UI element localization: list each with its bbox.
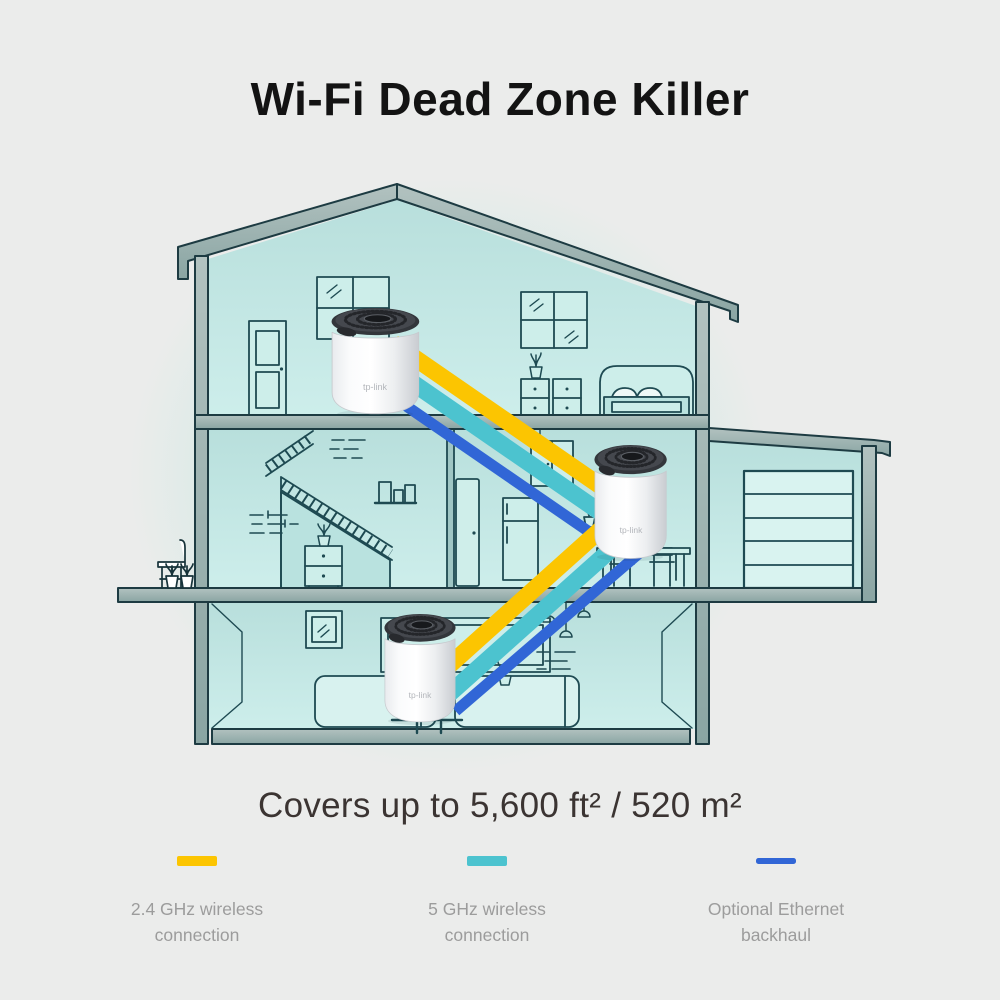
legend-item-24ghz: 2.4 GHz wireless connection: [87, 856, 307, 949]
ground-floor-slab: [212, 729, 690, 744]
tp-link-logo: tp-link: [620, 525, 643, 535]
bed: [600, 366, 693, 417]
nightstand: [305, 546, 342, 589]
infographic: Wi-Fi Dead Zone Killer: [0, 0, 1000, 1000]
porch: [158, 540, 193, 588]
house-illustration: tp-link tp-link tp-link: [0, 0, 1000, 1000]
legend-swatch-24ghz: [177, 856, 217, 866]
wall-right: [696, 302, 709, 744]
legend-item-5ghz: 5 GHz wireless connection: [377, 856, 597, 949]
deco-unit-middle: tp-link: [594, 445, 666, 558]
legend-label-ethernet: Optional Ethernet backhaul: [666, 896, 886, 949]
bedroom-window: [521, 292, 587, 348]
tp-link-logo: tp-link: [409, 690, 432, 700]
coverage-text: Covers up to 5,600 ft² / 520 m²: [0, 786, 1000, 826]
legend-item-ethernet: Optional Ethernet backhaul: [666, 856, 886, 949]
legend-swatch-ethernet: [756, 856, 796, 866]
garage-door: [744, 471, 853, 588]
deco-unit-attic: tp-link: [332, 308, 420, 414]
legend-label-5ghz: 5 GHz wireless connection: [377, 896, 597, 949]
partition-wall: [447, 429, 454, 588]
legend-label-24ghz: 2.4 GHz wireless connection: [87, 896, 307, 949]
garage-wall-right: [862, 446, 876, 602]
framed-picture: [306, 611, 342, 648]
attic-door: [249, 321, 286, 416]
wall-left: [195, 256, 208, 744]
deco-unit-ground: tp-link: [384, 614, 455, 722]
interior-door: [456, 479, 479, 586]
tp-link-logo: tp-link: [363, 382, 388, 392]
middle-floor-slab: [118, 588, 876, 602]
legend-swatch-5ghz: [467, 856, 507, 866]
